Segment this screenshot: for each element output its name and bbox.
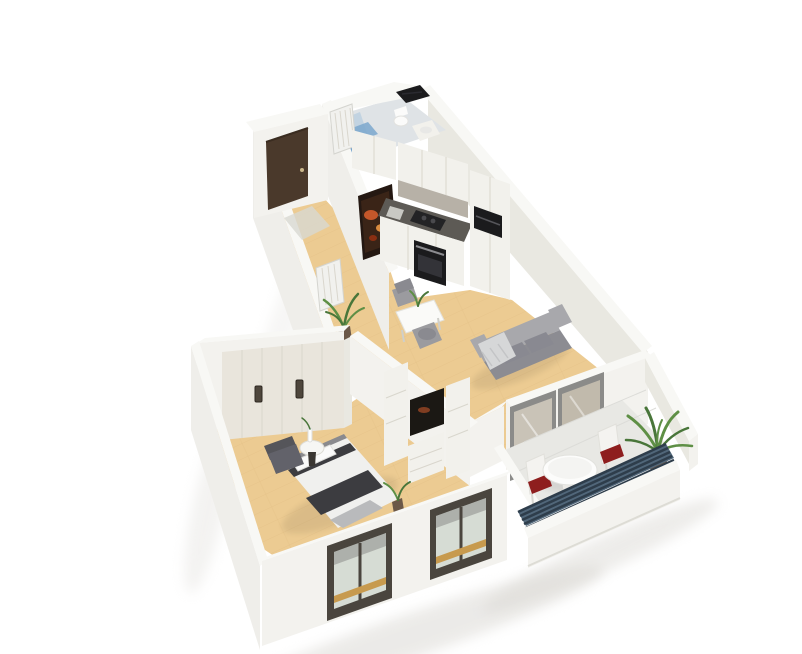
vase [308, 428, 312, 442]
floor-plan-canvas [0, 0, 802, 654]
tv-glow [418, 407, 430, 413]
burner [422, 216, 427, 221]
wardrobe [222, 336, 352, 440]
burner [431, 219, 436, 224]
tv-unit-tower [446, 377, 470, 479]
tall-cabinet [470, 170, 510, 300]
dining-chair-seat [418, 328, 436, 340]
door-handle [300, 168, 304, 172]
wardrobe-handle [255, 386, 262, 402]
wardrobe-handle [296, 380, 303, 398]
side-table-base [308, 452, 316, 466]
wardrobe-front [222, 340, 344, 440]
apartment-3d-render [0, 0, 802, 654]
entrance-wall [246, 104, 328, 218]
tv-unit-tower [384, 362, 408, 466]
toilet [394, 116, 408, 126]
sink-basin [420, 127, 432, 134]
